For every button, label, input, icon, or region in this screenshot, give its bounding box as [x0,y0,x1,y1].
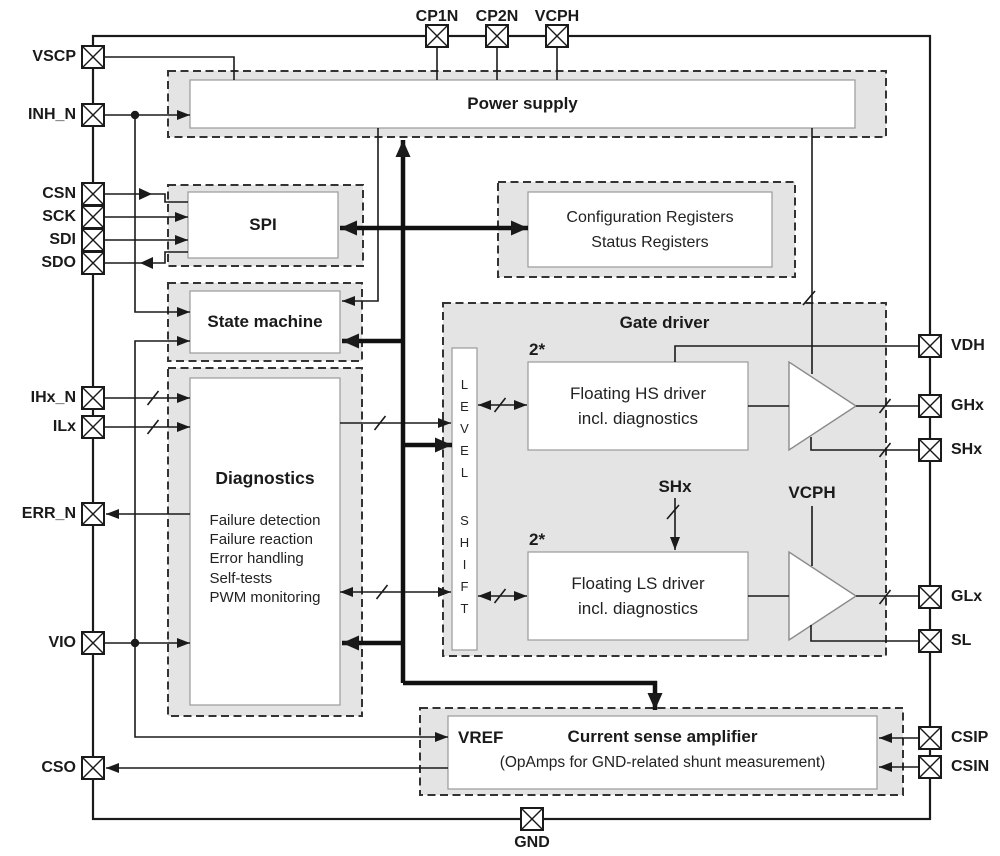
pin-label-csip: CSIP [951,726,1000,750]
pin-label-shx: SHx [951,438,1000,462]
midline-arrowheads [139,188,153,269]
pin-label-glx: GLx [951,585,1000,609]
state-machine-title: State machine [190,291,340,353]
pin-err-n [82,503,104,525]
gate-driver-title: Gate driver [443,310,886,335]
pin-csip [919,727,941,749]
pin-ghx [919,395,941,417]
pin-label-ghx: GHx [951,394,1000,418]
pin-csn [82,183,104,205]
pin-vio [82,632,104,654]
pin-vscp [82,46,104,68]
pin-label-ihx-n: IHx_N [0,386,76,410]
pin-sck [82,206,104,228]
pin-inh-n [82,104,104,126]
ls-driver-line2: incl. diagnostics [578,596,698,621]
ls-buffer-triangle [789,552,856,640]
registers-line1: Configuration Registers [566,205,733,230]
pin-label-vio: VIO [0,631,76,655]
pin-label-csn: CSN [0,182,76,206]
hs-driver-line1: Floating HS driver [570,381,706,406]
diagnostics-item: Failure reaction [210,530,321,549]
pin-shx [919,439,941,461]
ls-driver-line1: Floating LS driver [571,571,704,596]
pin-sdo [82,252,104,274]
pin-sl [919,630,941,652]
pin-label-sdi: SDI [0,228,76,252]
ls-channel-count: 2* [529,529,579,551]
level-shift-label: LEVELSHIFT [452,348,477,650]
pin-sdi [82,229,104,251]
diagnostics-item: Self-tests [210,569,321,588]
pin-label-vscp: VSCP [0,45,76,69]
vcph-supply-label: VCPH [770,481,854,505]
pin-vdh [919,335,941,357]
hs-driver-line2: incl. diagnostics [578,406,698,431]
pin-ilx [82,416,104,438]
power-supply-title: Power supply [190,80,855,128]
pin-label-err-n: ERR_N [0,502,76,526]
pin-gnd [521,808,543,830]
current-sense-title: Current sense amplifier [448,724,877,749]
pin-csin [919,756,941,778]
pin-cso [82,757,104,779]
pin-ihx-n [82,387,104,409]
block-diagram: CP1N CP2N VCPH VSCP INH_N CSN SCK SDI SD… [0,0,1000,856]
shx-feedback-label: SHx [640,475,710,499]
pin-label-sck: SCK [0,205,76,229]
registers-line2: Status Registers [591,230,708,255]
pin-label-ilx: ILx [0,415,76,439]
pin-label-sl: SL [951,629,1000,653]
diagnostics-item: Failure detection [210,511,321,530]
diagnostics-item: Error handling [210,549,321,568]
pin-label-vcph: VCPH [512,5,602,29]
pin-label-sdo: SDO [0,251,76,275]
junction-dots [131,111,139,647]
spi-title: SPI [188,192,338,258]
pin-label-csin: CSIN [951,755,1000,779]
current-sense-subtitle: (OpAmps for GND-related shunt measuremen… [448,752,877,774]
pin-label-cso: CSO [0,756,76,780]
pin-glx [919,586,941,608]
diagnostics-item: PWM monitoring [210,588,321,607]
pin-label-inh-n: INH_N [0,103,76,127]
diagnostics-title: Diagnostics [215,468,314,489]
hs-buffer-triangle [789,362,856,450]
pin-label-vdh: VDH [951,334,1000,358]
pin-label-gnd: GND [487,831,577,855]
hs-channel-count: 2* [529,339,579,361]
